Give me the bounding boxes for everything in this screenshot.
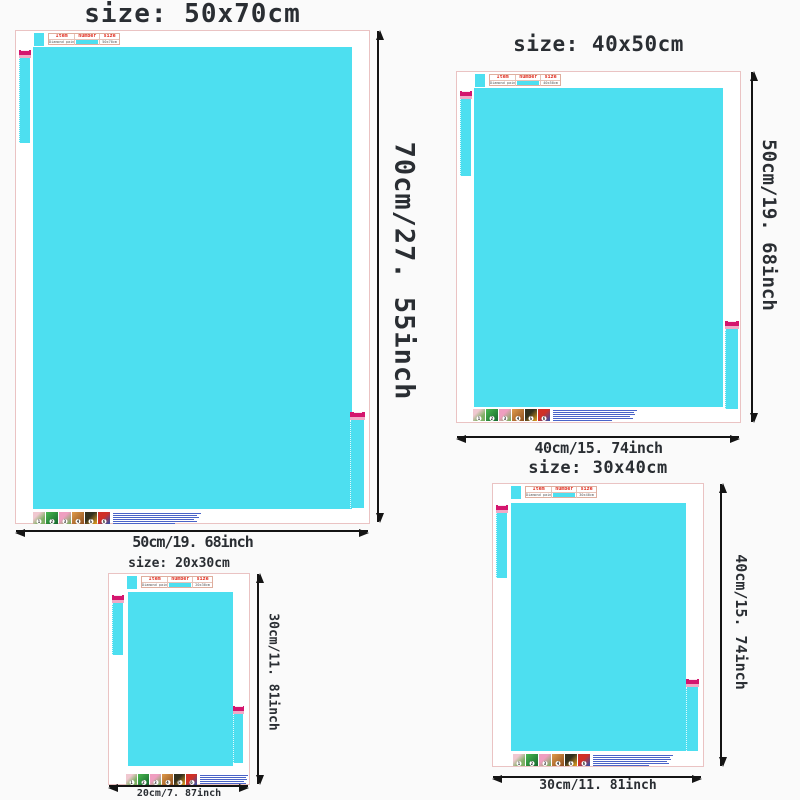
width-arrow <box>109 785 248 787</box>
instruction-step-thumb: 6 <box>186 774 197 785</box>
canvas-print-area <box>33 47 352 509</box>
panel-title: size: 20x30cm <box>108 557 250 571</box>
panel-title: size: 30x40cm <box>492 459 704 478</box>
spec-table: Item number size Diamond painting 40x50c… <box>489 74 561 86</box>
instruction-thumbnails: 1 2 3 4 5 6 <box>33 512 110 524</box>
canvas-mockup: Item number size Diamond painting 40x50c… <box>456 71 741 423</box>
step-number-badge: 1 <box>37 519 42 524</box>
spec-item-value: Diamond painting <box>49 40 74 45</box>
spec-header-size: size <box>99 34 119 39</box>
instruction-step-thumb: 1 <box>126 774 137 785</box>
spec-table-value-row: Diamond painting 20x30cm <box>142 583 212 588</box>
spec-header-item: Item <box>142 577 167 582</box>
instruction-step-thumb: 6 <box>538 409 550 421</box>
spec-table: Item number size Diamond painting 30x40c… <box>525 486 597 498</box>
instruction-strip: 1 2 3 4 5 6 <box>513 754 673 766</box>
legend-strip <box>19 58 30 143</box>
instruction-step-thumb: 4 <box>512 409 524 421</box>
step-number-badge: 5 <box>89 519 94 524</box>
spec-table-value-row: Diamond painting 50x70cm <box>49 40 119 45</box>
spec-size-value: 20x30cm <box>192 583 212 588</box>
size-panel-20x30: size: 20x30cm Item number size Diamond p… <box>108 573 250 785</box>
step-number-badge: 2 <box>50 519 55 524</box>
instruction-step-thumb: 5 <box>525 409 537 421</box>
brand-swatch <box>475 74 485 87</box>
spec-header-size: size <box>576 487 596 492</box>
canvas-mockup: Item number size Diamond painting 30x40c… <box>492 483 704 767</box>
instruction-step-thumb: 5 <box>174 774 185 785</box>
spec-number-swatch <box>515 81 540 86</box>
color-legend-right <box>686 677 699 751</box>
spec-header-size: size <box>540 75 560 80</box>
legend-caption <box>496 505 508 510</box>
instruction-step-thumb: 4 <box>552 754 564 766</box>
spec-size-value: 30x40cm <box>576 493 596 498</box>
legend-caption <box>460 91 472 96</box>
spec-header-number: number <box>515 75 540 80</box>
brand-swatch <box>34 33 44 46</box>
panel-title: size: 40x50cm <box>456 33 741 56</box>
height-dimension-label: 30cm/11. 81inch <box>266 613 281 730</box>
height-arrow <box>257 574 259 784</box>
instruction-step-thumb: 2 <box>526 754 538 766</box>
instruction-step-thumb: 5 <box>85 512 97 524</box>
color-legend-right <box>233 704 244 763</box>
color-legend-left <box>112 593 124 655</box>
height-dimension-label: 70cm/27. 55inch <box>389 142 420 401</box>
instruction-thumbnails: 1 2 3 4 5 6 <box>513 754 590 766</box>
instruction-strip: 1 2 3 4 5 6 <box>473 409 637 421</box>
step-number-badge: 4 <box>556 761 561 766</box>
instruction-step-thumb: 1 <box>33 512 45 524</box>
step-number-badge: 3 <box>63 519 68 524</box>
step-number-badge: 6 <box>582 761 587 766</box>
instruction-step-thumb: 6 <box>98 512 110 524</box>
panel-title: size: 50x70cm <box>15 0 370 29</box>
spec-header-number: number <box>74 34 99 39</box>
instruction-thumbnails: 1 2 3 4 5 6 <box>473 409 550 421</box>
instruction-step-thumb: 5 <box>565 754 577 766</box>
legend-caption <box>686 679 699 684</box>
height-arrow <box>751 72 753 422</box>
spec-header-number: number <box>167 577 192 582</box>
canvas-mockup: Item number size Diamond painting 50x70c… <box>15 30 370 524</box>
spec-table-value-row: Diamond painting 30x40cm <box>526 493 596 498</box>
spec-number-swatch <box>551 493 576 498</box>
color-legend-right <box>350 410 365 508</box>
height-arrow <box>377 31 379 522</box>
width-arrow <box>16 530 368 532</box>
step-number-badge: 5 <box>569 761 574 766</box>
legend-strip <box>686 687 698 751</box>
brand-swatch <box>511 486 521 499</box>
canvas-print-area <box>511 503 686 751</box>
spec-header-item: Item <box>49 34 74 39</box>
width-dimension-label: 30cm/11. 81inch <box>492 779 704 794</box>
instruction-step-thumb: 4 <box>72 512 84 524</box>
spec-number-swatch <box>167 583 192 588</box>
legend-caption <box>233 706 244 711</box>
spec-size-value: 40x50cm <box>540 81 560 86</box>
spec-header-number: number <box>551 487 576 492</box>
instruction-step-thumb: 3 <box>150 774 161 785</box>
size-panel-40x50: size: 40x50cm Item number size Diamond p… <box>456 71 741 423</box>
legend-caption <box>112 595 124 600</box>
spec-item-value: Diamond painting <box>142 583 167 588</box>
step-number-badge: 6 <box>542 416 547 421</box>
step-number-badge: 2 <box>530 761 535 766</box>
step-number-badge: 1 <box>477 416 482 421</box>
instruction-step-thumb: 2 <box>46 512 58 524</box>
instruction-text-lines <box>553 409 637 421</box>
spec-number-swatch <box>74 40 99 45</box>
instruction-step-thumb: 1 <box>473 409 485 421</box>
height-dimension-label: 40cm/15. 74inch <box>732 554 750 689</box>
width-dimension-label: 50cm/19. 68inch <box>15 534 370 551</box>
instruction-step-thumb: 3 <box>499 409 511 421</box>
canvas-print-area <box>128 592 233 766</box>
spec-header-item: Item <box>526 487 551 492</box>
color-legend-left <box>460 89 472 176</box>
instruction-step-thumb: 1 <box>513 754 525 766</box>
height-dimension-label: 50cm/19. 68inch <box>758 139 780 311</box>
spec-item-value: Diamond painting <box>526 493 551 498</box>
legend-strip <box>233 714 243 763</box>
step-number-badge: 1 <box>517 761 522 766</box>
spec-header-item: Item <box>490 75 515 80</box>
instruction-text-lines <box>593 754 673 766</box>
canvas-print-area <box>474 88 723 407</box>
legend-strip <box>350 420 364 508</box>
color-legend-right <box>725 319 739 409</box>
canvas-mockup: Item number size Diamond painting 20x30c… <box>108 573 250 785</box>
width-dimension-label: 40cm/15. 74inch <box>456 440 741 457</box>
instruction-step-thumb: 3 <box>59 512 71 524</box>
legend-strip <box>460 99 471 176</box>
instruction-thumbnails: 1 2 3 4 5 6 <box>126 774 197 785</box>
width-arrow <box>457 436 739 438</box>
spec-size-value: 50x70cm <box>99 40 119 45</box>
size-panel-30x40: size: 30x40cm Item number size Diamond p… <box>492 483 704 767</box>
color-legend-left <box>496 503 508 578</box>
spec-table: Item number size Diamond painting 50x70c… <box>48 33 120 45</box>
height-arrow <box>720 484 722 766</box>
step-number-badge: 5 <box>529 416 534 421</box>
legend-caption <box>19 50 31 55</box>
spec-table-value-row: Diamond painting 40x50cm <box>490 81 560 86</box>
instruction-step-thumb: 2 <box>138 774 149 785</box>
instruction-step-thumb: 2 <box>486 409 498 421</box>
step-number-badge: 3 <box>543 761 548 766</box>
instruction-strip: 1 2 3 4 5 6 <box>33 512 201 524</box>
legend-strip <box>725 329 738 409</box>
legend-strip <box>112 603 123 655</box>
step-number-badge: 4 <box>516 416 521 421</box>
instruction-step-thumb: 3 <box>539 754 551 766</box>
instruction-step-thumb: 6 <box>578 754 590 766</box>
instruction-step-thumb: 4 <box>162 774 173 785</box>
spec-table: Item number size Diamond painting 20x30c… <box>141 576 213 588</box>
step-number-badge: 3 <box>503 416 508 421</box>
brand-swatch <box>127 576 137 589</box>
instruction-text-lines <box>113 512 201 524</box>
size-panel-50x70: size: 50x70cm Item number size Diamond p… <box>15 30 370 524</box>
spec-header-size: size <box>192 577 212 582</box>
step-number-badge: 4 <box>76 519 81 524</box>
width-dimension-label: 20cm/7. 87inch <box>108 788 250 800</box>
spec-item-value: Diamond painting <box>490 81 515 86</box>
color-legend-left <box>19 48 31 143</box>
legend-strip <box>496 513 507 578</box>
step-number-badge: 6 <box>102 519 107 524</box>
legend-caption <box>350 412 365 417</box>
step-number-badge: 2 <box>490 416 495 421</box>
legend-caption <box>725 321 739 326</box>
